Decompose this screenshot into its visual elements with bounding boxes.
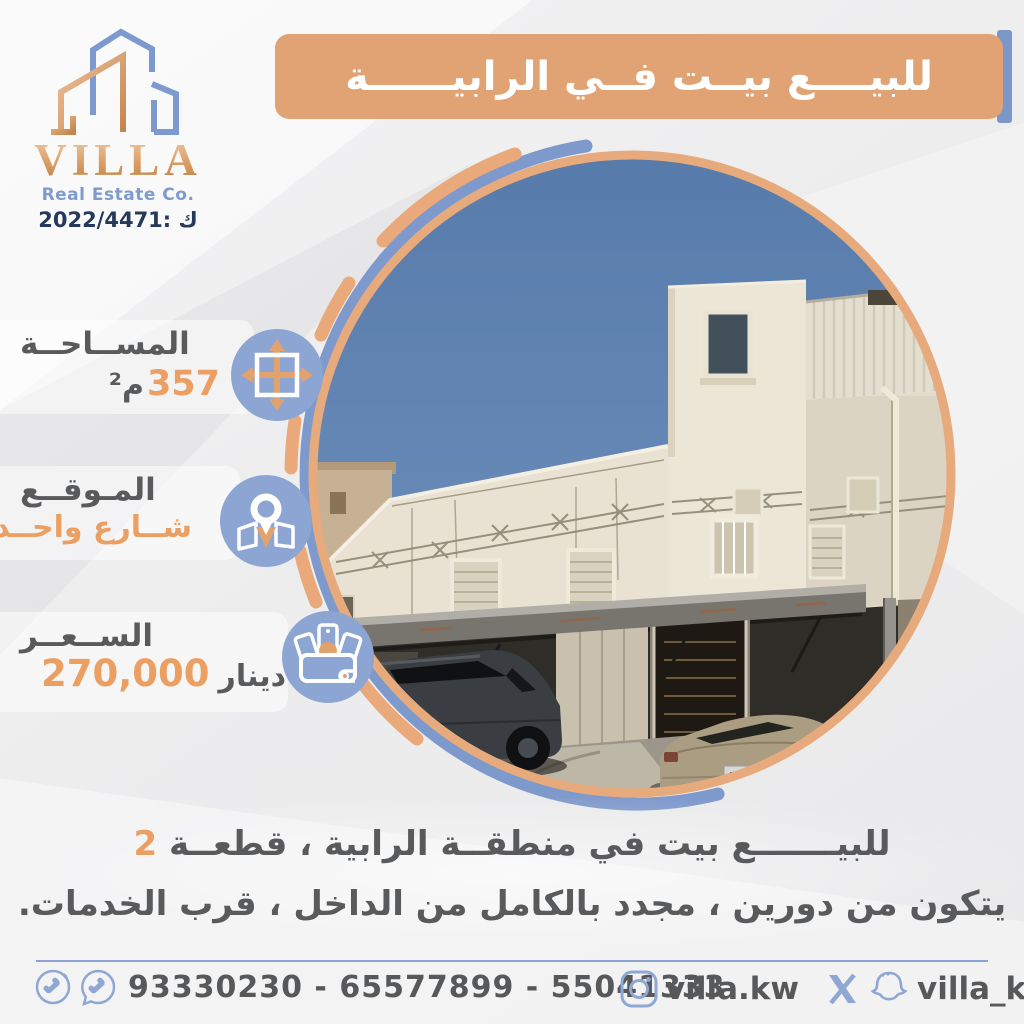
location-text: شــارع واحــد xyxy=(0,510,192,545)
real-estate-poster: للبيــــع بيــت فــي الرابيــــــة VILLA xyxy=(0,0,1024,1024)
x-twitter-icon xyxy=(823,970,861,1008)
description-line1-text: للبيـــــــع بيت في منطقــة الرابية ، قط… xyxy=(169,824,891,864)
location-value: شــارع واحــد xyxy=(20,510,192,545)
phone-icon xyxy=(34,968,72,1006)
price-unit: دينار xyxy=(219,659,286,694)
snapchat-icon xyxy=(866,968,912,1010)
description-line1: للبيـــــــع بيت في منطقــة الرابية ، قط… xyxy=(0,824,1024,864)
location-label: المـوقــع xyxy=(20,472,204,508)
area-label: المســاحــة xyxy=(20,326,220,362)
area-unit: م² xyxy=(109,368,144,403)
social-group: villa.kw villa_kw xyxy=(618,968,1024,1010)
description-backdrop xyxy=(0,798,1024,948)
description-plot-number: 2 xyxy=(133,824,157,864)
map-pin-icon xyxy=(220,475,312,567)
wallet-cash-icon xyxy=(282,611,374,703)
price-value: 270,000 دينار xyxy=(20,652,286,695)
price-number: 270,000 xyxy=(41,652,210,695)
instagram-handle: villa.kw xyxy=(665,971,799,1007)
expand-arrows-icon xyxy=(231,329,323,421)
footer-divider xyxy=(36,960,988,962)
price-label: الســعــر xyxy=(20,618,244,654)
whatsapp-icon xyxy=(78,968,118,1006)
social-handle: villa_kw xyxy=(917,971,1024,1007)
area-value: م² 357 xyxy=(20,364,220,404)
description-line2: يتكون من دورين ، مجدد بالكامل من الداخل … xyxy=(0,884,1024,924)
area-number: 357 xyxy=(147,364,220,404)
footer: 93330230 - 65577899 - 55041333 villa.kw … xyxy=(0,968,1024,1024)
instagram-icon xyxy=(618,968,660,1010)
